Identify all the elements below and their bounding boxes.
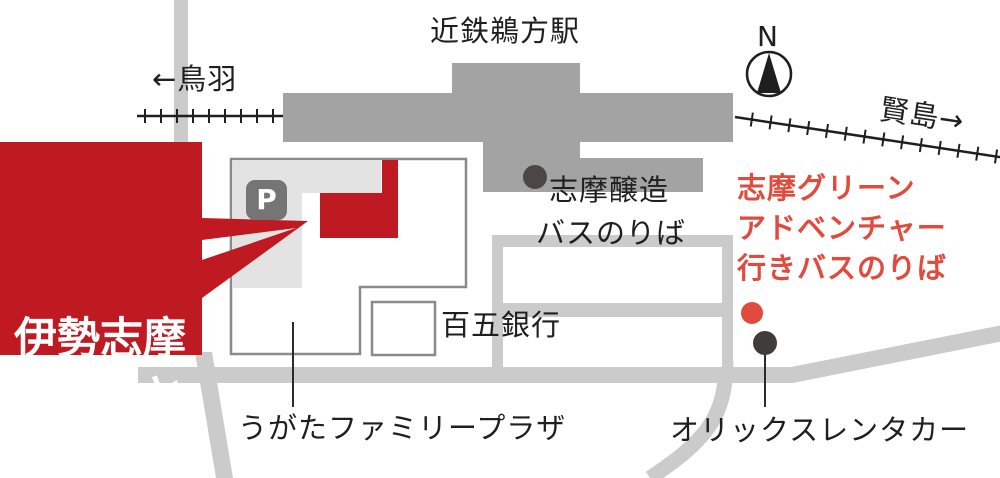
compass-icon bbox=[747, 52, 791, 96]
rentacar-dot bbox=[753, 331, 777, 355]
access-map: 近鉄鵜方駅 ←鳥羽 賢島→ N 志摩醸造 バスのりば 百五銀行 オリックスレンタ… bbox=[0, 0, 1000, 478]
rentacar-label: オリックスレンタカー bbox=[670, 416, 969, 445]
plaza-label: うがたファミリープラザ bbox=[238, 414, 566, 443]
bank-building bbox=[372, 302, 435, 355]
compass-north-label: N bbox=[757, 23, 779, 51]
parking-icon-letter: P bbox=[256, 186, 277, 214]
parking-icon: P bbox=[246, 180, 287, 220]
bus-stop-label: バスのりば bbox=[536, 219, 686, 248]
green-adventure-line3: 行きバスのりば bbox=[737, 248, 947, 288]
direction-west-label: ←鳥羽 bbox=[152, 65, 237, 94]
brewery-label: 志摩醸造 bbox=[549, 176, 669, 205]
green-adventure-line2: アドベンチャー bbox=[737, 208, 947, 248]
banner-line2: ぷらっと bbox=[14, 375, 186, 418]
green-adventure-line1: 志摩グリーン bbox=[737, 168, 947, 208]
green-bus-stop-dot bbox=[741, 302, 763, 324]
banner-line3: HOME bbox=[14, 427, 181, 472]
brewery-dot bbox=[523, 165, 547, 189]
banner-line1: 伊勢志摩 bbox=[14, 318, 186, 361]
green-adventure-bus-label: 志摩グリーン アドベンチャー 行きバスのりば bbox=[737, 168, 947, 288]
railway-west bbox=[137, 109, 284, 123]
title-banner: 伊勢志摩 ぷらっと HOME bbox=[0, 142, 202, 355]
station-label: 近鉄鵜方駅 bbox=[430, 17, 580, 46]
bus-bay-1 bbox=[503, 247, 722, 303]
bank-label: 百五銀行 bbox=[441, 311, 561, 340]
